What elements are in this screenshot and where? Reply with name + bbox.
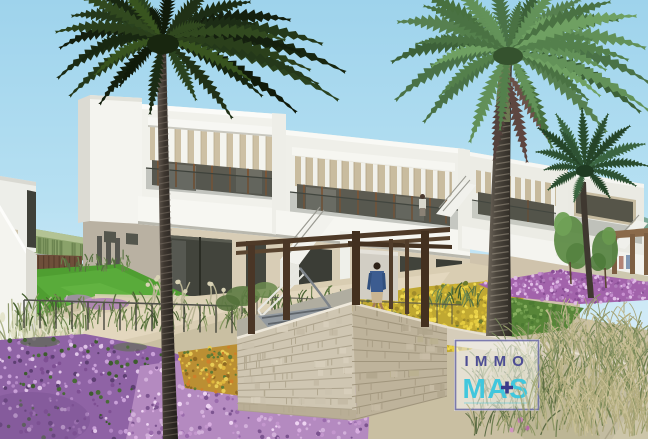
svg-text:MAS: MAS — [463, 373, 530, 404]
svg-text:IMMO: IMMO — [465, 353, 531, 370]
